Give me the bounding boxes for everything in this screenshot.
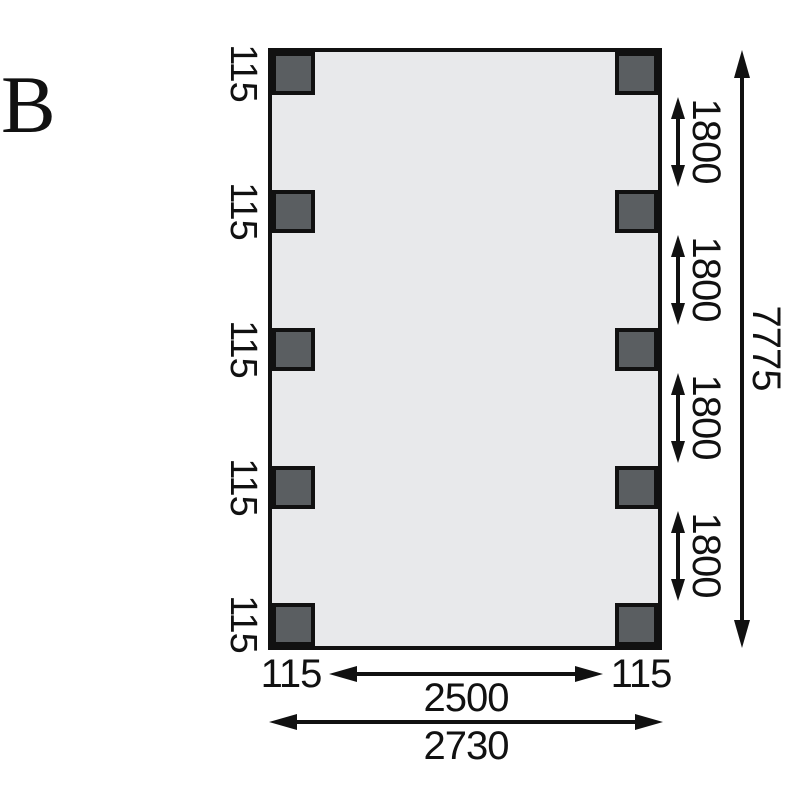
bay-spacing-arrow <box>671 511 685 601</box>
bay-spacing-arrow <box>671 97 685 187</box>
arrowhead-right-icon <box>575 666 603 682</box>
arrowhead-up-icon <box>671 511 685 533</box>
post-width-label: 115 <box>224 44 262 102</box>
technical-drawing-plan-b: B 115 115 115 115 115 1800 1800 1800 180… <box>0 0 800 800</box>
arrowhead-down-icon <box>671 441 685 463</box>
overall-width-label: 2730 <box>424 726 509 766</box>
post <box>615 328 658 371</box>
post-width-label-bottom-right: 115 <box>611 654 672 694</box>
arrowhead-up-icon <box>734 50 750 78</box>
overall-depth-label: 7775 <box>746 306 786 391</box>
bay-spacing-arrow <box>671 235 685 325</box>
arrow-line <box>676 115 680 169</box>
bay-spacing-label: 1800 <box>686 513 726 598</box>
arrowhead-down-icon <box>671 165 685 187</box>
bay-spacing-label: 1800 <box>686 237 726 322</box>
post-width-label: 115 <box>224 320 262 378</box>
bay-spacing-arrow <box>671 373 685 463</box>
post-width-label: 115 <box>224 458 262 516</box>
figure-label: B <box>1 64 56 146</box>
arrowhead-down-icon <box>734 620 750 648</box>
arrowhead-down-icon <box>671 579 685 601</box>
arrowhead-up-icon <box>671 373 685 395</box>
arrowhead-left-icon <box>269 714 297 730</box>
post <box>272 603 315 646</box>
post <box>615 52 658 95</box>
arrowhead-left-icon <box>329 666 357 682</box>
arrow-line <box>676 253 680 307</box>
bay-spacing-label: 1800 <box>686 375 726 460</box>
post <box>272 328 315 371</box>
post <box>615 190 658 233</box>
bay-spacing-label: 1800 <box>686 99 726 184</box>
arrowhead-right-icon <box>635 714 663 730</box>
post <box>272 52 315 95</box>
arrow-line <box>676 529 680 583</box>
post <box>272 466 315 509</box>
post <box>272 190 315 233</box>
arrowhead-down-icon <box>671 303 685 325</box>
post <box>615 466 658 509</box>
post-width-label: 115 <box>224 182 262 240</box>
arrowhead-up-icon <box>671 235 685 257</box>
arrowhead-up-icon <box>671 97 685 119</box>
post-width-label-bottom-left: 115 <box>261 654 322 694</box>
post <box>615 603 658 646</box>
post-width-label: 115 <box>224 595 262 653</box>
slab-outline <box>268 48 662 650</box>
arrow-line <box>676 391 680 445</box>
inner-width-label: 2500 <box>424 678 509 718</box>
